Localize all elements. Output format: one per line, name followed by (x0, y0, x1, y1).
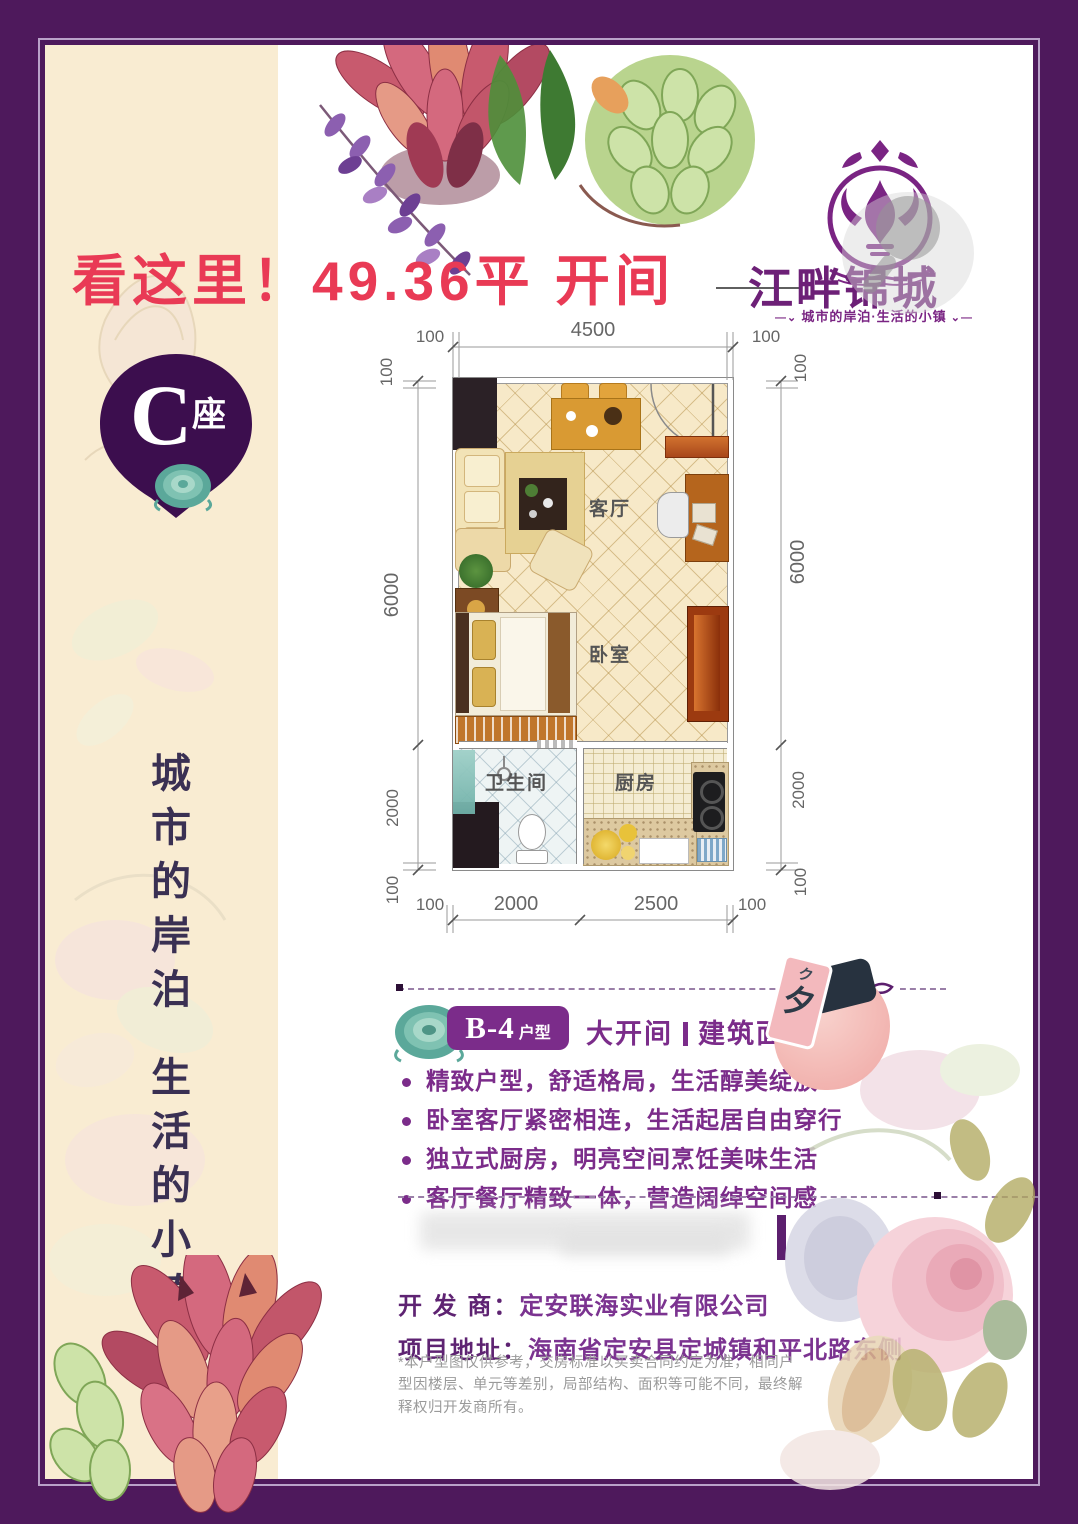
divider-dot (396, 984, 403, 991)
room-label-bedroom: 卧室 (589, 640, 631, 667)
bed (455, 612, 577, 716)
coffee-table (519, 478, 567, 530)
desk-chair (657, 492, 689, 538)
block-badge-letter: C (130, 367, 192, 463)
developer-value: 定安联海实业有限公司 (519, 1293, 769, 1320)
feature-item: 独立式厨房，明亮空间烹饪美味生活 (398, 1140, 818, 1179)
room-label-bathroom: 卫生间 (485, 768, 548, 795)
dim-bottom-100-right: 100 (738, 895, 766, 914)
feature-item: 精致户型，舒适格局，生活醇美绽放 (398, 1062, 818, 1101)
room-label-living: 客厅 (589, 494, 631, 521)
erased-text-smudge (560, 1232, 730, 1256)
stove (693, 772, 725, 832)
unit-type-badge: B-4户型 (447, 1006, 569, 1050)
dim-right-100-bottom: 100 (791, 868, 810, 896)
unit-type-code: B-4 (465, 1010, 515, 1045)
dim-right-6000: 6000 (787, 540, 809, 585)
developer-line: 开 发 商：定安联海实业有限公司 (398, 1286, 769, 1321)
tagline-right-flourish: ⌄— (947, 312, 973, 324)
tv-cabinet (665, 436, 729, 458)
bathroom-sliding-door (537, 740, 577, 748)
dim-top-4500: 4500 (571, 322, 616, 341)
dim-left-100-bottom: 100 (383, 876, 402, 904)
dim-bottom-2500: 2500 (634, 893, 679, 915)
room-label-kitchen: 厨房 (615, 768, 657, 795)
wall-vertical (577, 748, 583, 864)
bottom-left-floral-decoration (30, 1255, 350, 1524)
block-badge-text: C座 (118, 372, 238, 458)
headline-text: 看这里！49.36平 开间 (72, 244, 732, 318)
desk (685, 474, 729, 562)
column-top-left (453, 378, 497, 450)
wall-horizontal (459, 742, 727, 748)
feature-item: 卧室客厅紧密相连，生活起居自由穿行 (398, 1101, 818, 1140)
toilet (515, 814, 547, 864)
kitchen-appliance (639, 838, 689, 864)
disclaimer-text: *本户型图仅供参考，交房标准以买卖合同约定为准，相同户型因楼层、单元等差别，局部… (398, 1352, 808, 1419)
bedroom-cabinet (687, 606, 729, 722)
developer-label: 开 发 商： (398, 1293, 519, 1320)
feature-list: 精致户型，舒适格局，生活醇美绽放 卧室客厅紧密相连，生活起居自由穿行 独立式厨房… (398, 1062, 818, 1218)
dim-right-100-top: 100 (791, 354, 810, 382)
dish-rack (697, 838, 727, 862)
sticker-overlay: ク 夕 (768, 958, 898, 1103)
teal-rose-badge-tip (152, 460, 214, 512)
dim-top-left-100: 100 (416, 327, 444, 346)
dim-left-100-top: 100 (378, 358, 396, 386)
dim-bottom-100-left: 100 (416, 895, 444, 914)
block-badge-suffix: 座 (192, 396, 226, 434)
dim-top-right-100: 100 (752, 327, 780, 346)
dishes (589, 824, 639, 864)
plant (459, 554, 493, 588)
subtitle-separator-bar (683, 1022, 688, 1046)
dim-left-2000: 2000 (383, 789, 402, 827)
dim-bottom-2000: 2000 (494, 893, 539, 915)
watermark-magnifier-icon (876, 196, 940, 260)
dining-table (551, 398, 641, 450)
slogan-part1: 城市的岸泊 (145, 752, 190, 1022)
dim-right-2000: 2000 (789, 771, 808, 809)
shower-glass (453, 750, 475, 814)
unit-type-suffix: 户型 (519, 1025, 551, 1042)
flyer-poster: 看这里！49.36平 开间 江畔锦城 —⌄ 城市的岸泊·生活的小镇 ⌄— C座 (0, 0, 1078, 1524)
unit-tag: 大开间 (586, 1019, 673, 1049)
dim-left-6000: 6000 (381, 573, 403, 618)
vertical-slogan: 城市的岸泊生活的小镇 (138, 752, 196, 1332)
